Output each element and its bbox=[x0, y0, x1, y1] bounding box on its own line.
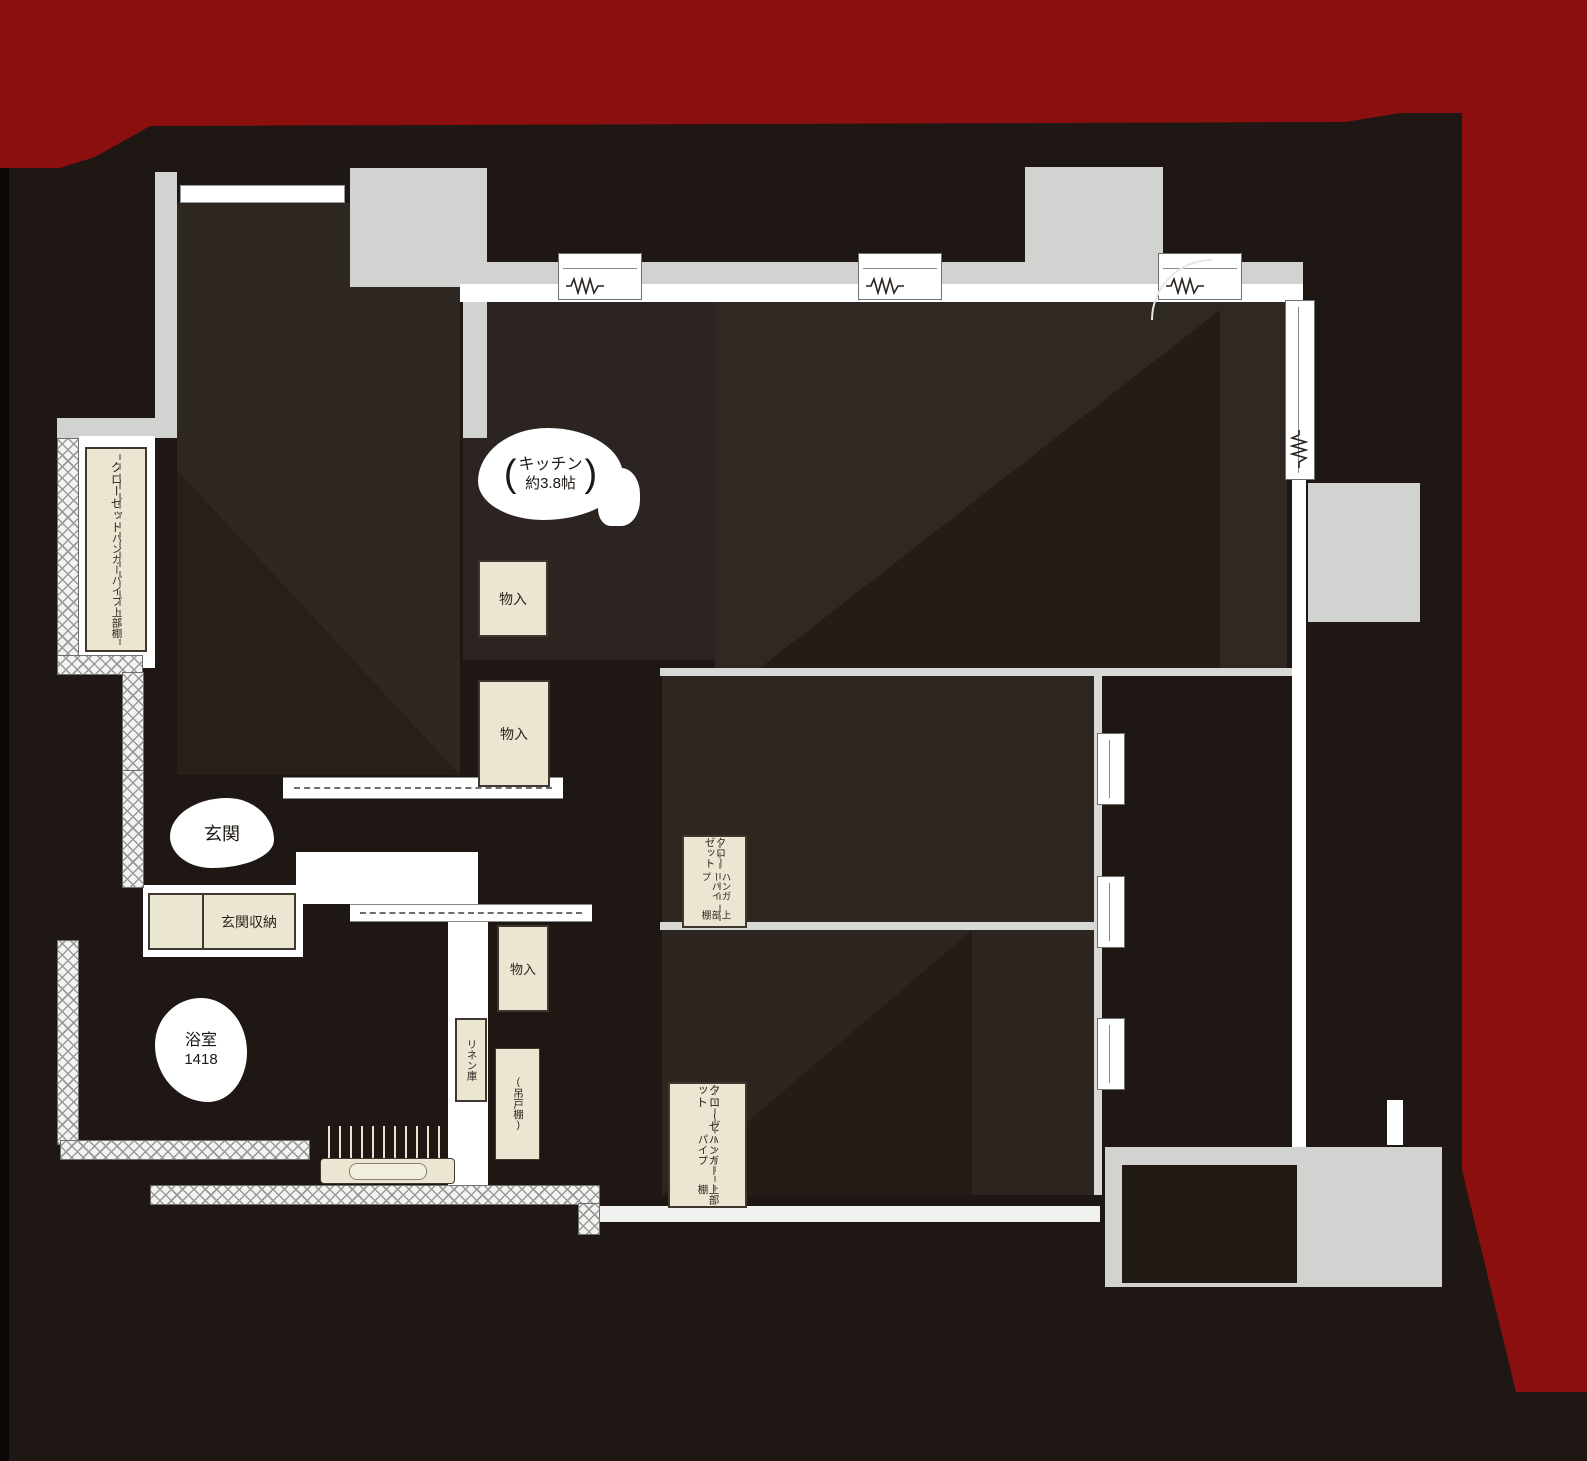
door-swing-arc bbox=[1150, 258, 1214, 322]
storage-a-box: 物入 bbox=[478, 560, 548, 637]
kitchen-paren-close: ) bbox=[585, 453, 598, 496]
closet-south: クローゼット ハンガーパイプ 上部棚 bbox=[668, 1082, 747, 1208]
red-band-right bbox=[1462, 0, 1587, 1400]
bathroom-size: 1418 bbox=[184, 1051, 217, 1068]
closet-center-label: クローゼット ハンガーパイプ 上部棚 bbox=[684, 837, 745, 926]
storage-b-box: 物入 bbox=[478, 680, 550, 787]
hanging-cupboard-area: ( 吊戸棚 ) bbox=[495, 1048, 540, 1160]
wall-slot-southeast bbox=[1387, 1100, 1403, 1145]
storage-c-box: 物入 bbox=[497, 925, 549, 1012]
exterior-wall-hatch-bath-bottom bbox=[60, 1140, 310, 1160]
wall-vertical-west bbox=[155, 172, 177, 430]
window-mullion bbox=[1109, 883, 1110, 941]
floor-plan-canvas: クローゼット ハンガーパイプ 上部棚 物入 物入 玄関収納 物入 リネン庫 ( … bbox=[0, 0, 1587, 1461]
kitchen-size: 約3.8帖 bbox=[518, 475, 582, 492]
entrance-label: 玄関 bbox=[204, 820, 240, 846]
sliding-door-track-corridor bbox=[350, 904, 592, 922]
corridor-east bbox=[1292, 480, 1306, 1147]
window-mullion bbox=[1109, 740, 1110, 798]
window-top-1 bbox=[558, 253, 642, 300]
balcony-edge-south bbox=[595, 1206, 1100, 1222]
exterior-wall-hatch-south-turn bbox=[578, 1203, 600, 1235]
hanger-pipe-line bbox=[714, 1089, 716, 1201]
track-dash-line bbox=[360, 912, 583, 914]
window-band-topleft bbox=[180, 185, 345, 203]
kitchen-counter-tail bbox=[598, 468, 640, 526]
wall-line-ldk-south bbox=[660, 668, 1292, 676]
window-east-vertical bbox=[1285, 300, 1315, 480]
window-spring-icon bbox=[1290, 429, 1308, 469]
red-band-top bbox=[0, 0, 1587, 200]
kitchen-name: キッチン bbox=[518, 456, 582, 474]
window-inner-3 bbox=[1097, 1018, 1125, 1090]
hanging-cupboard-label: ( 吊戸棚 ) bbox=[496, 1049, 539, 1159]
wall-column-topleft bbox=[463, 287, 487, 438]
entrance-storage-label-cell: 玄関収納 bbox=[204, 895, 294, 948]
corridor-hall bbox=[296, 852, 478, 904]
window-top-2 bbox=[858, 253, 942, 300]
window-inner-1 bbox=[1097, 733, 1125, 805]
window-mullion bbox=[1109, 1025, 1110, 1083]
linen-closet-label: リネン庫 bbox=[457, 1020, 485, 1100]
exterior-wall-hatch-west-4 bbox=[122, 770, 144, 888]
kitchen-label-lines: キッチン 約3.8帖 bbox=[518, 456, 582, 492]
left-edge-shadow bbox=[0, 0, 9, 1461]
balcony-slab-inset bbox=[1122, 1165, 1297, 1283]
window-spring-icon bbox=[865, 277, 905, 295]
bathroom-label-blob: 浴室 1418 bbox=[155, 998, 247, 1102]
entrance-storage-box: 玄関収納 bbox=[148, 893, 296, 950]
exterior-wall-hatch-south bbox=[150, 1185, 600, 1205]
vanity-basin bbox=[349, 1163, 427, 1180]
wall-block-east bbox=[1308, 483, 1420, 622]
window-mullion bbox=[863, 268, 937, 269]
entrance-storage-label: 玄関収納 bbox=[221, 912, 277, 932]
entrance-label-blob: 玄関 bbox=[170, 798, 274, 868]
hanger-pipe-line bbox=[719, 842, 721, 921]
window-spring-icon bbox=[565, 277, 605, 295]
closet-northwest-label: クローゼット ハンガーパイプ 上部棚 bbox=[87, 449, 145, 650]
window-inner-2 bbox=[1097, 876, 1125, 948]
vanity-counter bbox=[320, 1158, 455, 1184]
closet-northwest: クローゼット ハンガーパイプ 上部棚 bbox=[85, 447, 147, 652]
kitchen-paren-open: ( bbox=[504, 453, 517, 496]
exterior-wall-hatch-west-1 bbox=[57, 438, 79, 668]
exterior-wall-hatch-bath-left bbox=[57, 940, 79, 1145]
linen-closet-box: リネン庫 bbox=[455, 1018, 487, 1102]
track-dash-line bbox=[294, 787, 552, 789]
bathroom-label: 浴室 bbox=[185, 1032, 217, 1050]
storage-c-label: 物入 bbox=[510, 959, 536, 978]
closet-south-label: クローゼット ハンガーパイプ 上部棚 bbox=[670, 1084, 745, 1206]
wall-band-closet-top bbox=[57, 418, 177, 438]
closet-center: クローゼット ハンガーパイプ 上部棚 bbox=[682, 835, 747, 928]
window-mullion bbox=[563, 268, 637, 269]
faucet-handles bbox=[328, 1126, 448, 1158]
storage-b-label: 物入 bbox=[500, 724, 528, 744]
storage-a-label: 物入 bbox=[499, 589, 527, 609]
hanger-pipe-line bbox=[119, 454, 121, 645]
